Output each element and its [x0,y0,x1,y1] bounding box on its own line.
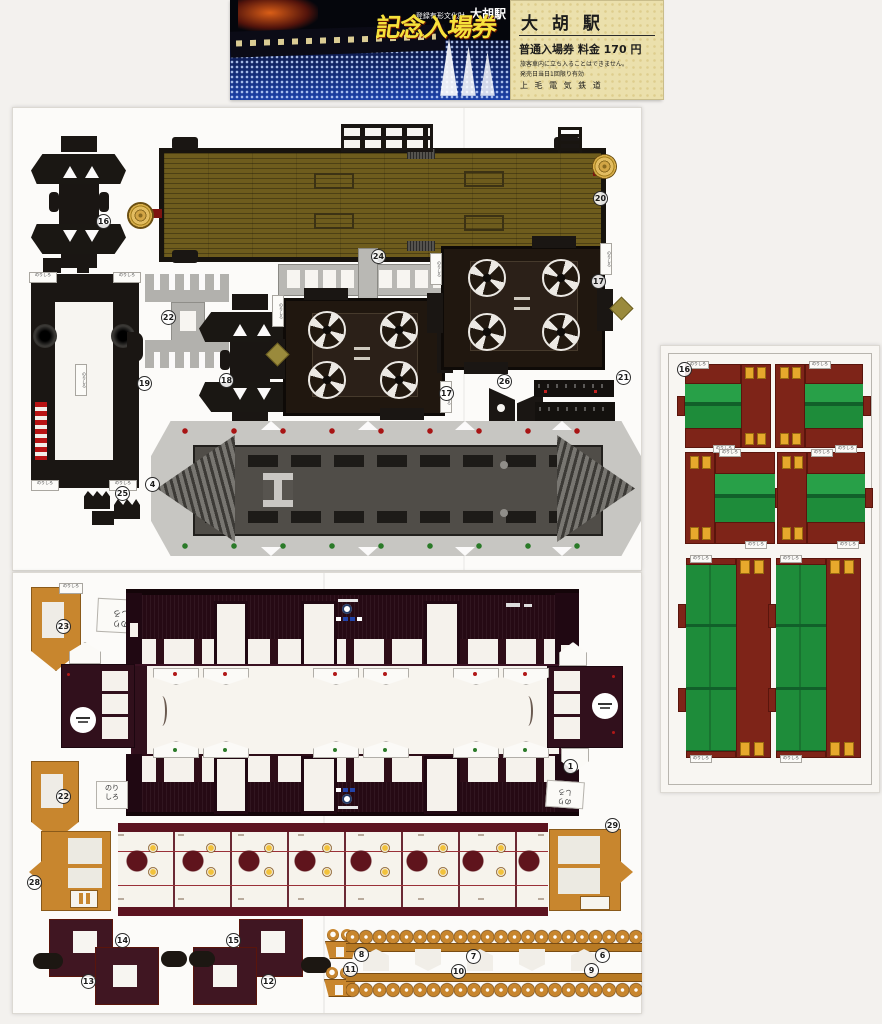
bench-back [736,558,771,758]
red-dot [383,672,387,676]
cross-seat: のりしろ のりしろ [777,452,867,544]
glue-tab-label: のりしろ [719,449,741,457]
red-dot [67,673,70,676]
red-dot [223,672,227,676]
wedge-hole [497,404,505,412]
gray-roof-piece [151,421,641,556]
tab-red [363,668,409,685]
connector-pill [161,951,187,967]
tab-red [503,668,549,685]
bogie-wheel-box-b: のりしろ のりしろ [441,246,605,370]
box-tab [380,408,424,420]
door-window [68,868,102,888]
squiggle-row [118,834,548,836]
end-window [554,694,580,714]
underframe-piece: のりしろ のりしろ のりしろ のりしろ のりしろ [31,274,139,488]
roundel-mark [76,717,90,719]
ticket-title: 記念入場券 [373,8,498,44]
connector-pill [33,953,63,969]
end-slot [130,623,138,637]
part-number: 16 [677,362,692,377]
spoked-wheel [542,313,580,351]
armrest-gold [745,367,754,379]
coupler-eye [327,929,339,941]
tab-red [153,668,199,685]
bench-tab [678,688,686,712]
spoked-wheel [542,259,580,297]
box-tab [304,288,348,300]
armrest-gold [745,433,754,445]
stub-note1: 旅客車内に立ち入ることはできません。 [520,59,660,68]
l-hole [73,931,97,953]
end-window [554,671,580,691]
plate [357,617,362,621]
red-dot [473,672,477,676]
roof-edge [126,812,579,816]
armrest-gold [757,433,766,445]
spoked-wheel [380,361,418,399]
door-outline [523,696,533,726]
glue-tab-label: のりしろ [31,480,59,491]
part-number: 9 [584,963,599,978]
craft-sheet-body: のりしろ 23 のり しろ [12,572,642,1014]
comb-teeth-top [145,274,229,290]
glue-box-rotated: のり しろ [545,780,585,810]
door-outline [157,696,167,726]
seat-cushion-green [685,384,741,428]
car-number-mark [338,806,358,809]
l-piece [95,947,159,1005]
end-window [102,671,128,691]
builder-roundel [592,693,618,719]
long-bench-seat: のりしろ のりしろ [776,558,861,758]
small-fitting [92,511,114,525]
bench-back [826,558,861,758]
door-detail [580,896,610,910]
orange-door-piece-right [549,829,621,911]
glue-tab-label: のりしろ [835,445,857,453]
end-window [102,717,128,739]
spoked-wheel [468,313,506,351]
stub-company: 上 毛 電 気 鉄 道 [520,80,660,91]
headmark-cluster [328,599,368,625]
door-window [68,838,102,864]
truss-bottom [31,224,126,254]
part-number: 28 [27,875,42,890]
orange-door-piece-left [41,831,111,911]
bench-tab [768,604,776,628]
window-row [126,639,579,665]
part-number: 8 [354,947,369,962]
car-end-left [126,593,142,665]
stub-rule [519,35,655,36]
frame-lug-right [99,192,109,212]
part-number: 13 [81,974,96,989]
glue-line2: しろ [97,793,127,802]
part-number: 11 [343,962,358,977]
side-point-tab [619,860,633,884]
green-dot-row [181,542,611,550]
armrest-gold [794,456,803,469]
car-side-b [126,754,579,816]
armrest-gold [794,527,803,540]
part-number: 10 [451,964,466,979]
top-fitting [43,258,61,273]
armrest-gold [757,367,766,379]
craft-sheet-seats: 16 のりしろ のりしろ のりしろ のりしろ [660,345,880,793]
roundel-mark [600,707,610,709]
armrest-gold [830,560,840,574]
green-dot [383,748,387,752]
roof-clip [407,241,435,251]
car-number-mark [338,599,358,602]
strip-rivets [539,407,611,411]
door-window [558,868,600,894]
top-fitting [77,263,89,273]
part-number: 20 [593,191,608,206]
l-hole [261,931,285,953]
headmark-roundel [342,604,352,614]
cross-seat: のりしろ のりしろ [685,452,775,544]
gold-wheel-right [592,154,617,179]
small-fitting [84,491,110,509]
door-opening [214,601,248,669]
frame-center [230,342,270,382]
roundel-mark [78,721,88,723]
frame-lug-left [49,192,59,212]
armrest-gold [754,560,764,574]
glue-tab-label: のりしろ [745,541,767,549]
part-number: 17 [591,274,606,289]
glue-tab-label: のりしろ [75,364,87,396]
strip-border-top [118,823,548,832]
glue-tab-label: のりしろ [272,295,284,327]
car-side-a [126,589,579,669]
bogie-wheel-box-a: のりしろ のりしろ [283,298,445,416]
fire-glow [238,0,318,32]
car-end-left [126,754,142,812]
white-mark [524,604,532,607]
green-dot [523,748,527,752]
squiggle-row [118,898,548,900]
coupler-eye [326,967,338,979]
l-hole [113,965,137,987]
seat-tab [677,396,685,416]
glue-tab-label: のりしろ [59,583,83,594]
part-number: 14 [115,933,130,948]
door-opening [214,756,248,814]
coupler-notch [336,947,344,957]
armrest-gold [792,367,801,379]
stub-station: 大 胡 駅 [521,9,653,34]
papercraft-scan-page: 登録有形文化財 大胡駅 記念入場券 大 胡 駅 普通入場券 料金 170 円 旅… [0,0,882,1024]
box-detail [514,297,530,300]
plate [336,788,341,792]
green-dot [223,748,227,752]
bench-tab [678,604,686,628]
spoked-wheel [468,259,506,297]
stub-fare-line: 普通入場券 料金 170 円 [519,41,659,57]
armrest-gold [830,742,840,756]
ladder-piece [558,127,582,153]
ticket-photo: 登録有形文化財 大胡駅 記念入場券 [230,0,510,100]
khaki-diamond-tab [609,296,633,320]
craft-sheet-chassis: 16 20 [12,107,642,571]
side-bump [127,332,143,362]
armrest-gold [780,367,789,379]
door-bar [86,893,90,904]
part-number: 21 [616,370,631,385]
seat-cushion-green [807,474,865,522]
roof-dark-slab [193,445,603,536]
roof-walk-grid [341,124,433,152]
bogie-side-frame-a [31,136,126,268]
i-beam-hatch [263,473,293,507]
strip-red-dot [544,390,547,393]
end-wall-right [547,666,623,748]
wheel-dark [33,324,57,348]
corner-tab [172,137,198,150]
red-dot [612,731,615,734]
glue-tab-label: のりしろ [113,272,141,283]
frame-head [61,136,97,152]
headmark-roundel [342,794,352,804]
part-number: 24 [371,249,386,264]
strip-middle [118,832,548,907]
red-dot [173,672,177,676]
plate [343,788,348,792]
ceiling-lamp-strip [118,823,548,916]
plate [336,617,341,621]
armrest-gold [844,560,854,574]
end-window [554,717,580,739]
box-detail [354,357,370,360]
part-number: 4 [145,477,160,492]
glue-tab-label: のりしろ [29,272,57,283]
part-number: 6 [595,948,610,963]
long-bench-seat: のりしろ のりしろ [686,558,771,758]
hatch-outline [314,173,354,189]
roof-dot [500,509,508,517]
part-number: 17 [439,386,454,401]
glue-tab-label: のりしろ [811,449,833,457]
part-number: 25 [115,486,130,501]
door-bar [79,893,83,904]
seat-tab [865,488,873,508]
seat-cushion-green [715,474,775,522]
part-number: 22 [161,310,176,325]
bench-tab [768,688,776,712]
end-window [102,694,128,714]
cross-seat: のりしろ のりしろ [685,364,771,448]
spoked-wheel [380,311,418,349]
bench-cushion-green [686,564,736,752]
green-dot [173,748,177,752]
part-number: 7 [466,949,481,964]
seat-tab [863,396,871,416]
part-number: 19 [137,376,152,391]
end-wall-left [61,664,135,748]
frame-lug-left [220,350,230,370]
roundel-mark [598,703,612,705]
red-dot [612,675,615,678]
corner-tab [172,250,198,263]
box-detail [354,347,370,350]
armrest-gold [740,742,750,756]
spoked-wheel [308,361,346,399]
frame-center [59,184,99,224]
armrest-gold [690,527,699,540]
glue-tab-label: のりしろ [690,755,712,763]
part-number: 18 [219,373,234,388]
part-number: 12 [261,974,276,989]
knob-strip-bottom [346,971,642,1001]
connector-pill [189,951,215,967]
headmark-cluster [328,788,368,812]
part-number: 26 [497,374,512,389]
glue-tab-label: のりしろ [600,243,612,275]
cross-seat: のりしろ のりしろ [775,364,863,448]
solebar-strip [534,380,614,397]
door-window [558,836,600,864]
door-opening [424,601,460,669]
truss-top [31,154,126,184]
hatch-outline [464,171,504,187]
tab-red [313,668,359,685]
tab-red [453,668,499,685]
orange-strip-bottom-left [31,761,79,841]
armrest-gold [702,456,711,469]
red-fittings-column [35,402,47,460]
red-dot [333,672,337,676]
coupler-notch [335,985,343,995]
plate [350,617,355,621]
armrest-gold [844,742,854,756]
builder-roundel [70,707,96,733]
floor-band [131,664,561,760]
seat-cushion-green [805,384,863,428]
gold-wheel-left [127,202,154,229]
part-number: 23 [56,619,71,634]
armrest-gold [782,456,791,469]
glue-tab-label: のりしろ [837,541,859,549]
glue-box: のり しろ [96,781,128,809]
roof-dot [500,461,508,469]
armrest-gold [690,456,699,469]
green-dot [333,748,337,752]
spoked-wheel [308,311,346,349]
frame-head [232,294,268,310]
knob-row [346,982,642,1001]
glue-tab-label: のりしろ [690,555,712,563]
white-mark [506,603,520,607]
fold-hexagon [519,949,545,971]
armrest-gold [702,527,711,540]
part-number: 22 [56,789,71,804]
armrest-gold [782,527,791,540]
red-dot-row [181,427,611,435]
stub-note2: 発売日当日1回限り有効 [520,69,660,78]
box-tab [427,293,443,333]
glue-tab-label: のりしろ [780,555,802,563]
tab-red [203,668,249,685]
door-opening [424,756,460,814]
part-number: 16 [96,214,111,229]
glue-tab-label: のりしろ [430,253,442,285]
box-tab [532,236,576,248]
part-number: 15 [226,933,241,948]
window-row [126,756,579,782]
strip-border-bottom [118,907,548,916]
plate [343,617,348,621]
glue-line1: のり [97,784,127,793]
fold-hexagon [415,949,441,971]
lamp-dot-row [118,843,548,853]
armrest-gold [754,742,764,756]
glue-tab-label: のりしろ [809,361,831,369]
strip-rivets [538,384,610,388]
l-hole [213,965,237,987]
plate [350,788,355,792]
lamp-dot-row [118,867,548,877]
floor-left-wall [133,666,147,758]
red-dot [523,672,527,676]
green-dot [473,748,477,752]
small-fitting [114,499,140,519]
bench-cushion-green [776,564,826,752]
vent-row [205,455,591,467]
part-number: 1 [563,759,578,774]
door-detail [70,890,98,908]
grid-row [344,128,430,136]
box-tab [464,362,508,374]
part-number: 29 [605,818,620,833]
grid-row [344,140,430,148]
armrest-gold [780,433,789,445]
strip-red-dot [594,390,597,393]
box-detail [514,307,530,310]
strip-windows-left [287,270,357,288]
vent-row [205,511,591,523]
hatch-outline [314,213,354,229]
armrest-gold [792,433,801,445]
hatch-outline [464,215,504,231]
armrest-gold [740,560,750,574]
commemorative-ticket: 登録有形文化財 大胡駅 記念入場券 大 胡 駅 普通入場券 料金 170 円 旅… [230,0,662,100]
glue-tab-label: のりしろ [780,755,802,763]
comb-center-hole [180,311,196,331]
partition-group-1 [49,919,159,1005]
ticket-stub: 大 胡 駅 普通入場券 料金 170 円 旅客車内に立ち入ることはできません。 … [510,0,664,100]
